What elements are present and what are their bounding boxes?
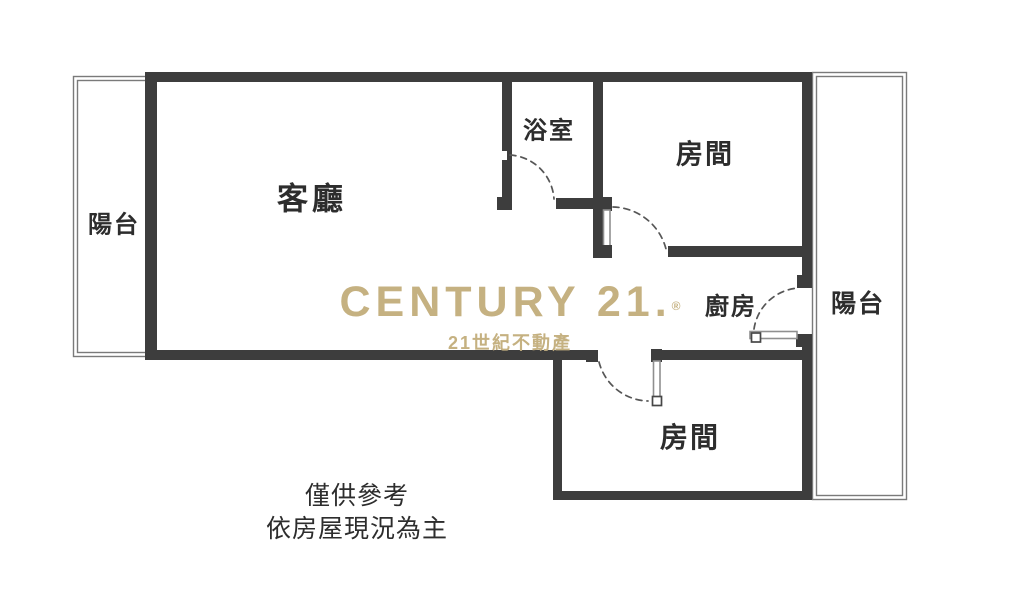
wall-left [145,72,157,360]
door-arc-kitchen [754,288,799,329]
door-arc-bedroom1 [613,207,666,249]
wall-kitchen-bottom [661,350,812,360]
wall-bathroom-left [502,82,512,203]
room-label-bedroom-bottom: 房間 [660,416,720,456]
room-label-kitchen: 廚房 [705,287,757,322]
door-bedroom1-leaf [604,210,611,246]
door-bedroom2-hinge-marker [653,397,662,406]
disclaimer-line-1: 僅供參考 [266,480,448,513]
wall-top [145,72,812,82]
wall-bedroom2-left [553,352,562,500]
room-label-balcony-right: 陽台 [831,284,885,320]
door-kitchen-hinge-marker [752,333,761,342]
floor-plan: 陽台 客廳 浴室 房間 廚房 陽台 房間 CENTURY 21.® 21世紀不動… [0,0,1024,610]
door-arc-bathroom [510,155,554,199]
door-bedroom1-hinge-block [598,197,612,211]
watermark-brand-text: CENTURY 21. [339,278,671,326]
disclaimer-note: 僅供參考 依房屋現況為主 [266,480,448,546]
door-arc-bedroom2 [599,362,648,401]
door-bedroom1-bottom-block [593,245,612,258]
disclaimer-line-2: 依房屋現況為主 [266,513,448,546]
watermark-brand-line: CENTURY 21.® [339,281,680,324]
room-label-living-room: 客廳 [277,174,347,219]
wall-bottom [553,491,812,500]
wall-right-lower-cap [796,334,812,347]
wall-right-upper-cap [797,275,812,288]
room-label-balcony-left: 陽台 [88,205,140,240]
wall-kitchen-top [668,246,812,257]
wall-bathroom-left-cap [497,197,512,210]
door-bedroom2-leaf [654,361,661,398]
wall-bathroom-right [593,82,603,252]
door-bathroom-hinge-notch [502,151,507,160]
watermark-subtitle: 21世紀不動產 [339,329,680,355]
wall-bathroom-bottom [556,198,598,209]
room-label-bedroom-top: 房間 [676,133,734,172]
room-label-bathroom: 浴室 [523,111,575,146]
brand-watermark: CENTURY 21.® 21世紀不動產 [339,281,680,355]
registered-trademark-icon: ® [672,299,681,313]
